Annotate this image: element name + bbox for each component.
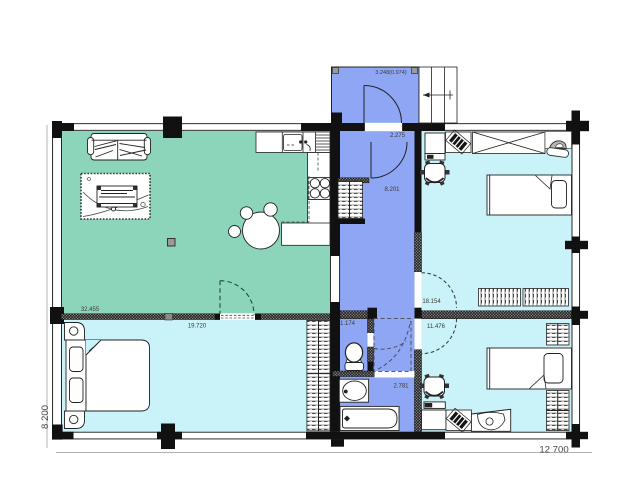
svg-text:32.455: 32.455 [81,307,100,313]
svg-text:11.476: 11.476 [427,324,446,330]
svg-text:19.720: 19.720 [188,324,207,330]
svg-text:1.174: 1.174 [340,321,356,327]
svg-text:12 700: 12 700 [539,444,568,455]
svg-text:2.275: 2.275 [390,133,406,139]
svg-text:8 200: 8 200 [40,405,51,429]
svg-text:3.248(0.974): 3.248(0.974) [375,70,406,76]
svg-text:8.201: 8.201 [384,187,400,193]
svg-text:2.781: 2.781 [393,384,409,390]
svg-text:18.154: 18.154 [422,299,441,305]
